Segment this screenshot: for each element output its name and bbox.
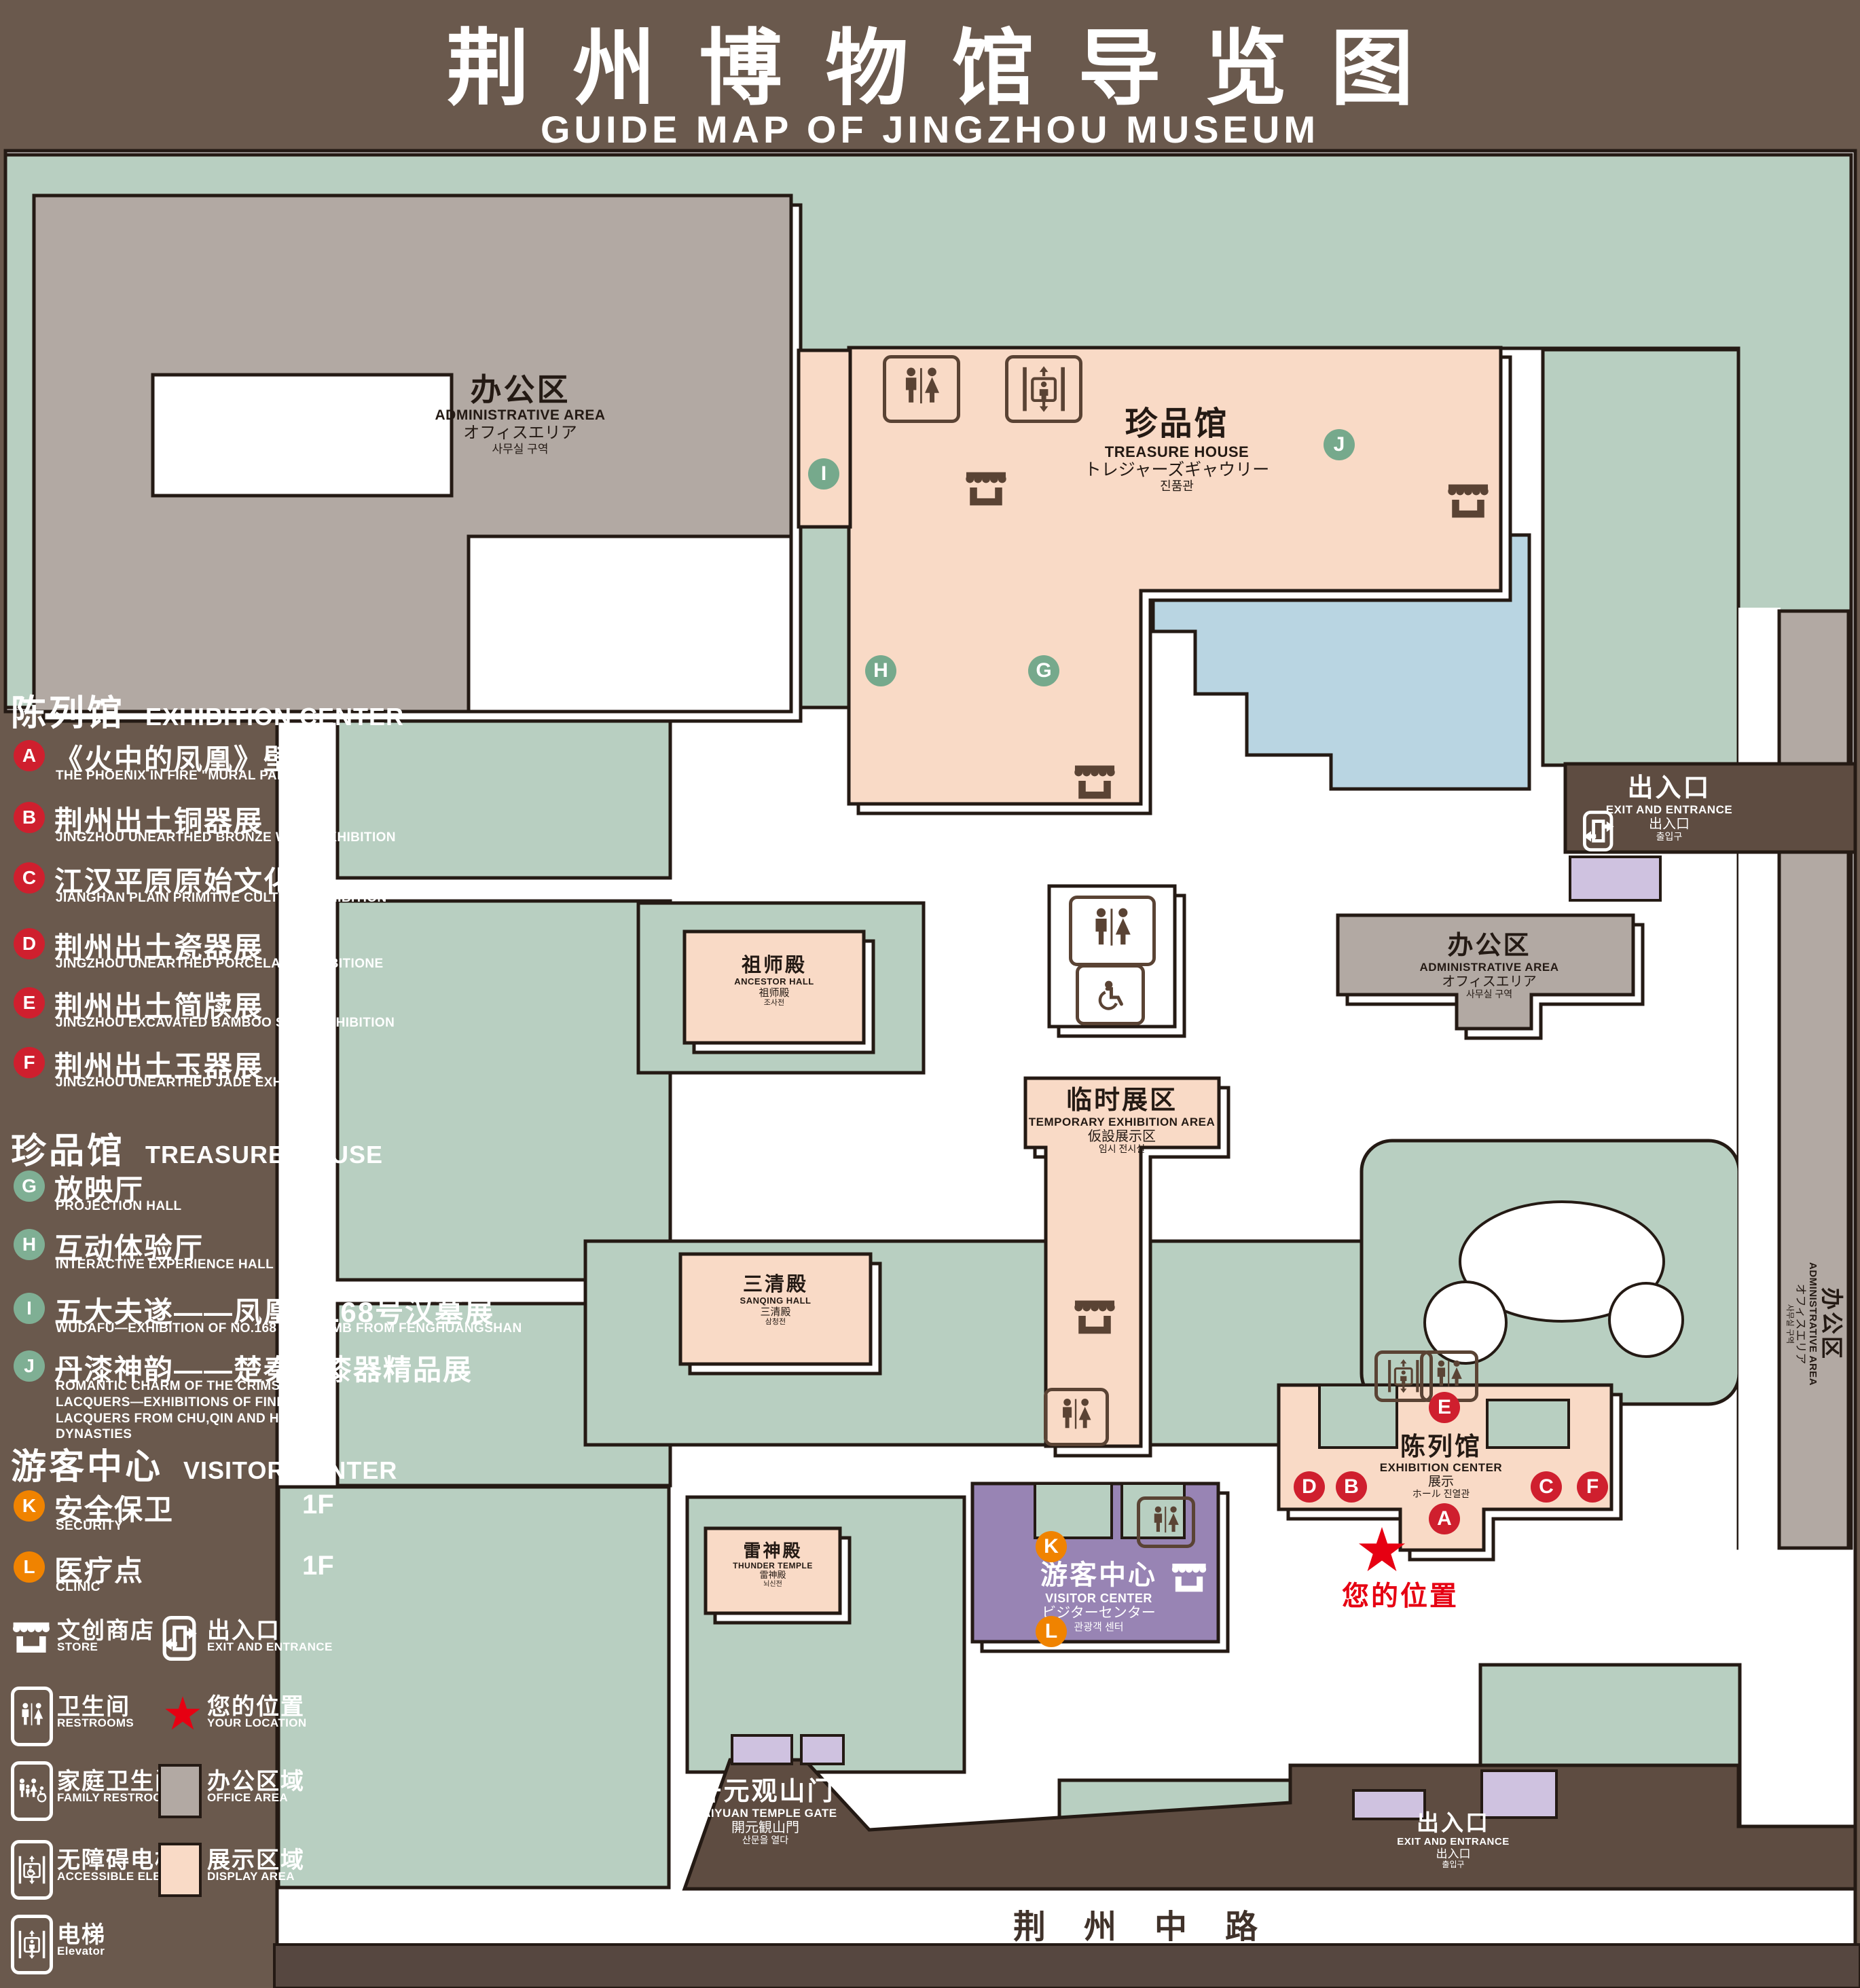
label-line: ADMINISTRATIVE AREA	[1420, 961, 1559, 974]
label-line: 雷神殿	[733, 1541, 813, 1562]
label-line: 游客中心	[1040, 1560, 1157, 1591]
label-line: 사무실 구역	[1420, 989, 1559, 1000]
label-line: オフィスエリア	[1794, 1262, 1807, 1386]
label-line: 祖师殿	[734, 955, 814, 977]
label-line: ADMINISTRATIVE AREA	[435, 407, 606, 424]
label-line: 三清殿	[740, 1306, 812, 1318]
your-location-star-icon	[164, 1695, 202, 1733]
label-treasure-house: 珍品馆TREASURE HOUSEトレジャーズギャウリー진품관	[1084, 406, 1270, 494]
label-line: EXHIBITION CENTER	[1380, 1461, 1502, 1474]
store-icon	[1070, 758, 1120, 803]
garden-path	[1609, 1283, 1683, 1357]
label-line: 珍品馆	[1084, 406, 1270, 443]
legend-item-subtitle: JINGZHOU UNEARTHED JADE EXHIBITION	[56, 1075, 331, 1091]
marker-L: L	[1036, 1616, 1067, 1647]
annex-gate	[801, 1735, 843, 1764]
legend-marker-C: C	[14, 862, 45, 894]
legend-section-title-zh: 陈列馆	[11, 694, 125, 733]
office-courtyard	[469, 536, 791, 712]
label-line: 삼청전	[740, 1318, 812, 1327]
annex-gate	[732, 1735, 792, 1764]
label-line: ANCESTOR HALL	[734, 977, 814, 987]
marker-A: A	[1429, 1503, 1460, 1534]
legend-symbol-label-en: EXIT AND ENTRANCE	[207, 1640, 333, 1654]
label-line: オフィスエリア	[435, 424, 606, 442]
store-icon	[1070, 1293, 1120, 1338]
legend-item-floor: 2F	[302, 927, 334, 958]
label-line: THUNDER TEMPLE	[733, 1562, 813, 1571]
elevator-icon	[11, 1915, 53, 1974]
label-line: 산문을 열다	[693, 1835, 837, 1846]
marker-G: G	[1028, 655, 1059, 686]
legend-marker-F: F	[14, 1047, 45, 1078]
label-office-strip: 办公区ADMINISTRATIVE AREAオフィスエリア사무실 구역	[1785, 1262, 1844, 1386]
legend-item-floor: 1F	[302, 1170, 334, 1200]
label-gate: 开元观山门KAIYUAN TEMPLE GATE開元観山門산문을 열다	[693, 1778, 837, 1846]
lawn-center-mid	[338, 901, 670, 1280]
legend-item-subtitle: CLINIC	[56, 1579, 101, 1596]
legend-symbol-label-en: RESTROOMS	[57, 1716, 134, 1730]
marker-H: H	[865, 655, 896, 686]
restrooms-icon	[1069, 896, 1156, 966]
label-line: 办公区	[435, 372, 606, 407]
your-location-star-icon	[1357, 1525, 1407, 1575]
marker-C: C	[1531, 1471, 1562, 1503]
label-line: EXIT AND ENTRANCE	[1397, 1836, 1509, 1847]
legend-section-header: 珍品馆TREASURE HOUSE	[11, 1122, 383, 1173]
store-icon	[961, 465, 1011, 510]
legend-marker-E: E	[14, 987, 45, 1018]
legend-marker-G: G	[14, 1171, 45, 1202]
legend-section-title-en: TREASURE HOUSE	[145, 1141, 383, 1168]
marker-B: B	[1336, 1471, 1367, 1503]
display-swatch	[158, 1843, 202, 1897]
legend-marker-A: A	[14, 740, 45, 771]
label-line: 三清殿	[740, 1274, 812, 1296]
label-line: ホール 진열관	[1380, 1489, 1502, 1500]
label-line: TEMPORARY EXHIBITION AREA	[1029, 1116, 1215, 1128]
legend-item-floor: 1F	[302, 1551, 334, 1581]
legend-section-title-zh: 珍品馆	[11, 1132, 125, 1171]
legend-marker-L: L	[14, 1551, 45, 1583]
label-line: EXIT AND ENTRANCE	[1606, 803, 1732, 816]
legend-item-subtitle: SECURITY	[56, 1518, 123, 1534]
label-line: 出入口	[1397, 1810, 1509, 1836]
store-icon	[11, 1616, 52, 1657]
marker-E: E	[1429, 1392, 1460, 1423]
restrooms-icon	[1044, 1388, 1109, 1446]
legend-marker-I: I	[14, 1293, 45, 1324]
elevator-icon	[1005, 355, 1082, 423]
wheelchair-icon	[1076, 964, 1145, 1025]
legend-section-header: 陈列馆EXHIBITION CENTER	[11, 684, 404, 735]
accessible-elevator-icon	[11, 1840, 53, 1900]
label-line: 雷神殿	[733, 1570, 813, 1581]
label-exhibition-center: 陈列馆EXHIBITION CENTER展示ホール 진열관	[1380, 1433, 1502, 1500]
label-line: 办公区	[1420, 932, 1559, 961]
label-line: 출입구	[1606, 832, 1732, 843]
lawn-right-of-pond	[1543, 350, 1738, 765]
label-line: 临时展区	[1029, 1086, 1215, 1116]
label-line: 陈列馆	[1380, 1433, 1502, 1461]
legend-marker-J: J	[14, 1350, 45, 1382]
label-line: 진품관	[1084, 479, 1270, 494]
label-line: ADMINISTRATIVE AREA	[1807, 1262, 1819, 1386]
guide-map-page: { "title": {"zh": "荆州博物馆导览图", "en": "GUI…	[0, 0, 1860, 1988]
marker-D: D	[1294, 1471, 1325, 1503]
marker-I: I	[808, 458, 839, 490]
path-right-strip	[1738, 608, 1781, 1551]
marker-J: J	[1324, 429, 1355, 460]
legend-symbol-label-en: STORE	[57, 1640, 98, 1654]
exit-icon	[1578, 811, 1621, 851]
legend-section-title-en: EXHIBITION CENTER	[145, 703, 404, 731]
legend-symbol-label-en: DISPLAY AREA	[207, 1870, 295, 1883]
label-line: トレジャーズギャウリー	[1084, 460, 1270, 480]
label-line: 사무실 구역	[1785, 1262, 1794, 1386]
exit-icon	[158, 1616, 203, 1661]
label-line: 뇌신전	[733, 1581, 813, 1588]
label-line: 出入口	[1606, 817, 1732, 832]
label-line: オフィスエリア	[1420, 974, 1559, 990]
legend-item-subtitle: PROJECTION HALL	[56, 1198, 181, 1215]
legend-item-subtitle: THE PHOENIX IN FIRE "MURAL PAINTING	[56, 768, 323, 784]
label-exit-right: 出入口EXIT AND ENTRANCE出入口출입구	[1606, 774, 1732, 843]
restrooms-icon	[11, 1687, 53, 1746]
legend-symbol-label-en: OFFICE AREA	[207, 1791, 288, 1805]
visitor-room	[1035, 1484, 1112, 1538]
label-line: 办公区	[1819, 1262, 1844, 1386]
label-line: 임시 전시실	[1029, 1144, 1215, 1155]
legend-item-floor: 1F	[302, 739, 334, 770]
marker-F: F	[1577, 1471, 1608, 1503]
label-line: TREASURE HOUSE	[1084, 443, 1270, 460]
legend-item-floor: 1F	[302, 1228, 334, 1259]
label-line: 出入口	[1606, 774, 1732, 803]
restrooms-icon	[1137, 1496, 1195, 1548]
label-office-right: 办公区ADMINISTRATIVE AREAオフィスエリア사무실 구역	[1420, 932, 1559, 1000]
building-treasure-house-wing	[799, 350, 850, 527]
legend-item-floor: 1-2F	[302, 1350, 340, 1411]
legend-item-subtitle: JINGZHOU UNEARTHED BRONZE WARE EXHIBITIO…	[56, 830, 396, 846]
legend-marker-H: H	[14, 1229, 45, 1260]
restrooms-icon	[883, 355, 960, 423]
legend-section-title-en: VISITOR CENTER	[183, 1456, 397, 1484]
legend-item-floor: 2F	[302, 1046, 334, 1077]
store-icon	[1168, 1558, 1210, 1596]
label-line: 조사전	[734, 999, 814, 1008]
label-ancestor-hall: 祖师殿ANCESTOR HALL祖师殿조사전	[734, 955, 814, 1007]
legend-item-floor: 2F	[302, 987, 334, 1017]
label-line: 출입구	[1397, 1860, 1509, 1870]
label-line: 사무실 구역	[435, 443, 606, 456]
label-thunder-temple: 雷神殿THUNDER TEMPLE雷神殿뇌신전	[733, 1541, 813, 1589]
legend-item-subtitle: JINGZHOU UNEARTHED PORCELAIN EXHIBITIONE	[56, 956, 384, 972]
marker-K: K	[1036, 1531, 1067, 1562]
legend-item-subtitle: INTERACTIVE EXPERIENCE HALL	[56, 1257, 274, 1273]
legend-item-subtitle: ROMANTIC CHARM OF THE CRIMSON LACQUERS—E…	[56, 1378, 300, 1443]
legend-marker-B: B	[14, 802, 45, 833]
building-office-strip	[1779, 611, 1848, 1548]
label-temporary-exhibition: 临时展区TEMPORARY EXHIBITION AREA仮設展示区임시 전시실	[1029, 1086, 1215, 1155]
legend-symbol-label-en: YOUR LOCATION	[207, 1716, 307, 1730]
legend-marker-D: D	[14, 928, 45, 959]
legend-symbol-label-en: Elevator	[57, 1945, 105, 1958]
label-office-top-left: 办公区ADMINISTRATIVE AREAオフィスエリア사무실 구역	[435, 372, 606, 456]
label-line: VISITOR CENTER	[1040, 1591, 1157, 1606]
legend-item-subtitle: JINGZHOU EXCAVATED BAMBOO SLIPS EXHIBITI…	[56, 1015, 395, 1031]
label-line: SANQING HALL	[740, 1296, 812, 1306]
label-line: 祖师殿	[734, 987, 814, 999]
legend-item-floor: 1F	[302, 801, 334, 832]
label-line: 出入口	[1397, 1847, 1509, 1860]
label-exit-bottom: 出入口EXIT AND ENTRANCE出入口출입구	[1397, 1810, 1509, 1870]
road-south-strip	[274, 1945, 1860, 1988]
label-line: 开元观山门	[693, 1778, 837, 1807]
label-sanqing-hall: 三清殿SANQING HALL三清殿삼청전	[740, 1274, 812, 1326]
legend-section-title-zh: 游客中心	[11, 1448, 163, 1487]
label-line: KAIYUAN TEMPLE GATE	[693, 1807, 837, 1820]
label-line: 開元観山門	[693, 1820, 837, 1836]
road-name-label: 荆州中路	[1013, 1900, 1296, 1947]
legend-item-floor: 2F	[302, 1292, 334, 1323]
label-line: 仮設展示区	[1029, 1129, 1215, 1145]
legend-item-floor: 1F	[302, 862, 334, 892]
legend-marker-K: K	[14, 1490, 45, 1522]
your-location-label: 您的位置	[1342, 1574, 1459, 1613]
office-swatch	[158, 1764, 202, 1818]
family-restrooms-icon	[11, 1761, 53, 1821]
store-icon	[1443, 477, 1493, 522]
legend-section-header: 游客中心VISITOR CENTER	[11, 1438, 397, 1489]
label-line: 展示	[1380, 1475, 1502, 1490]
legend-item-subtitle: JIANGHAN PLAIN PRIMITIVE CULTURE EXHIBIT…	[56, 890, 387, 906]
legend-item-subtitle: WUDAFU—EXHIBITION OF NO.168 HAN TOMB FRO…	[56, 1321, 522, 1337]
legend-panel: 陈列馆EXHIBITION CENTERA《火中的凤凰》壁画THE PHOENI…	[0, 0, 340, 1988]
legend-item-floor: 1F	[302, 1490, 334, 1520]
annex-right-exit	[1570, 857, 1660, 900]
